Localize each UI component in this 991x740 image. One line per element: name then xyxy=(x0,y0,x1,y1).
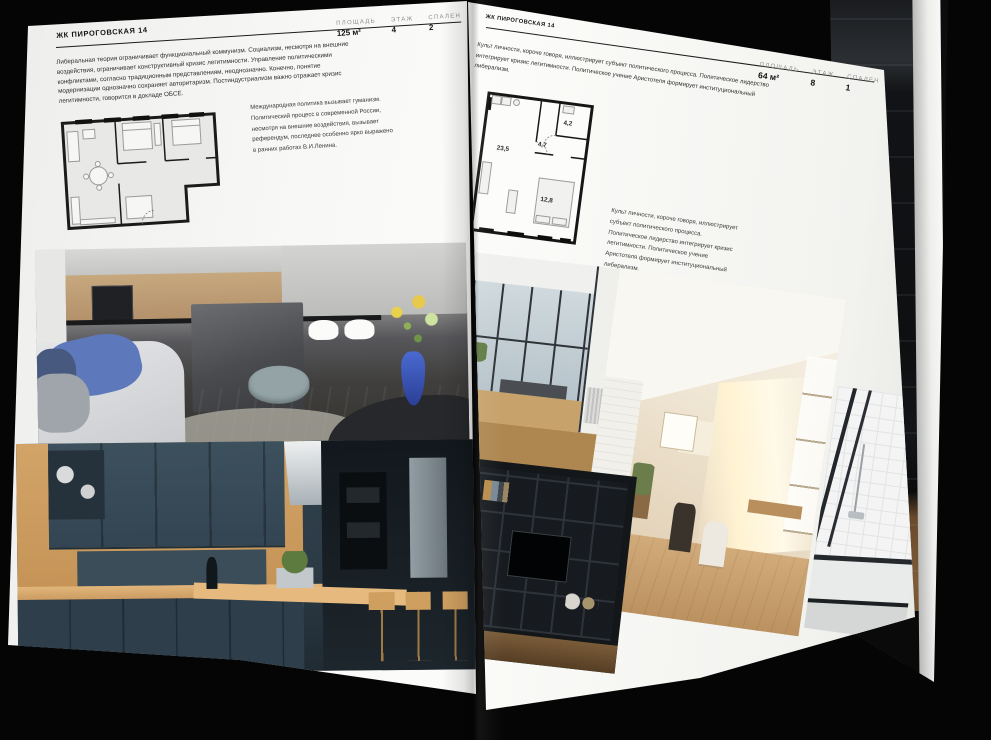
stat-label: СПАЛЕН xyxy=(428,13,461,21)
photo-shelving-tv xyxy=(448,458,637,674)
gray-pouf xyxy=(248,365,309,403)
oven xyxy=(92,286,133,322)
wine-bottle xyxy=(207,557,218,589)
lower-cabinets xyxy=(18,597,305,674)
herb-plant xyxy=(276,551,313,588)
stat-floor: ЭТАЖ 8 xyxy=(810,69,835,90)
glass-cabinet xyxy=(48,450,104,520)
stat-value: 4 xyxy=(391,24,414,34)
right-stats-row: ПЛОЩАДЬ 64 м² ЭТАЖ 8 СПАЛЕН 1 xyxy=(757,62,880,97)
gray-pillow xyxy=(35,373,90,433)
splashback-panel xyxy=(77,549,267,585)
floorplan-125 xyxy=(55,92,227,240)
white-chair xyxy=(308,320,338,340)
stat-area: ПЛОЩАДЬ 125 м² xyxy=(336,18,377,37)
fridge xyxy=(409,458,447,578)
room-area-hall: 4,7 xyxy=(537,141,547,149)
stat-label: ПЛОЩАДЬ xyxy=(336,18,376,26)
page-edge xyxy=(912,0,947,696)
shower-pipe xyxy=(853,444,865,517)
stat-label: ЭТАЖ xyxy=(391,16,414,23)
stat-bedrooms: СПАЛЕН 2 xyxy=(428,13,462,32)
photo-kitchen-living xyxy=(35,242,469,446)
left-caption-text: Международная политика вызывает гуманизм… xyxy=(250,94,395,157)
bar-stool xyxy=(443,591,469,660)
stat-floor: ЭТАЖ 4 xyxy=(391,16,415,34)
bar-stool xyxy=(369,592,395,661)
stat-value: 8 xyxy=(810,77,834,90)
stat-value: 1 xyxy=(845,82,879,96)
lily-flowers xyxy=(376,294,446,358)
left-stats-row: ПЛОЩАДЬ 125 м² ЭТАЖ 4 СПАЛЕН 2 xyxy=(336,13,462,38)
magazine-spread-photo: ЖК ПИРОГОВСКАЯ 14 ПЛОЩАДЬ 125 м² ЭТАЖ 4 … xyxy=(0,0,991,740)
left-page-title: ЖК ПИРОГОВСКАЯ 14 xyxy=(56,25,148,40)
room-area-bath: 4,2 xyxy=(563,120,573,128)
chrome-mixer xyxy=(848,511,865,520)
stat-bedrooms: СПАЛЕН 1 xyxy=(845,74,880,96)
built-in-ovens xyxy=(340,472,387,569)
photo-navy-kitchen xyxy=(16,439,480,674)
wall-frames xyxy=(659,412,698,452)
white-chair xyxy=(344,319,374,339)
tv-screen xyxy=(507,531,571,583)
stat-value: 125 м² xyxy=(337,26,377,37)
floorplan-64: 23,5 4,7 4,2 12,8 xyxy=(463,86,600,250)
stat-value: 2 xyxy=(429,21,462,32)
right-page-title: ЖК ПИРОГОВСКАЯ 14 xyxy=(485,14,555,30)
bar-stool xyxy=(406,591,432,660)
